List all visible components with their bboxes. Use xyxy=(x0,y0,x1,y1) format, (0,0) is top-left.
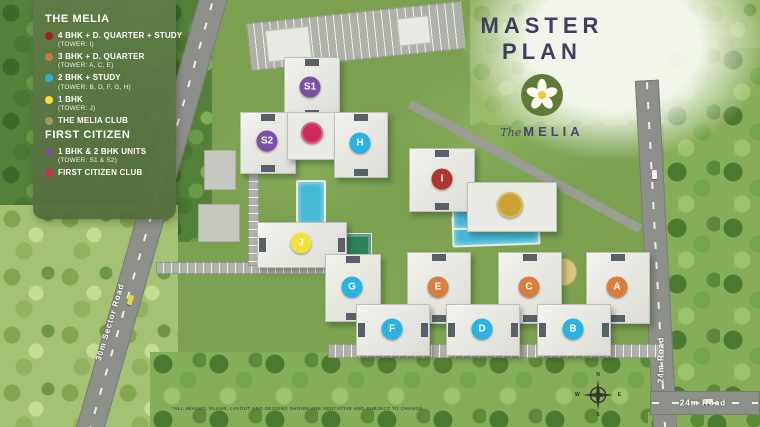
tower-marker-c: C xyxy=(519,277,540,298)
first-citizen-club-marker xyxy=(301,122,323,144)
legend-item-sub: (TOWER: B, D, F, G, H) xyxy=(58,84,131,91)
compass-w-label: W xyxy=(575,392,580,398)
disclaimer-text: *ALL IMAGES, PLANS, LAYOUT AND DESIGNS S… xyxy=(172,407,423,412)
tower-marker-f: F xyxy=(382,319,403,340)
legend-item: 4 BHK + D. QUARTER + STUDY(TOWER: I) xyxy=(45,31,170,48)
brand-wordmark: TheMELIA xyxy=(438,123,646,141)
legend-item-text: 1 BHK(TOWER: J) xyxy=(58,95,95,112)
building-utility-2 xyxy=(396,15,431,46)
legend-item-label: 3 BHK + D. QUARTER xyxy=(58,52,145,61)
road-label: 24m Road xyxy=(657,337,666,383)
legend-item-label: THE MELIA CLUB xyxy=(58,116,128,125)
tower-marker-a: A xyxy=(607,277,628,298)
compass-n-label: N xyxy=(596,372,600,378)
legend-item-sub: (TOWER: A, C, E) xyxy=(58,62,145,69)
compass-e-label: E xyxy=(618,392,621,398)
legend-item-sub: (TOWER: I) xyxy=(58,41,182,48)
legend-item-label: 1 BHK & 2 BHK UNITS xyxy=(58,147,146,156)
legend-color-dot xyxy=(45,74,53,82)
brand-name: MELIA xyxy=(523,124,583,139)
tower-marker-s1: S1 xyxy=(300,77,321,98)
amenity-pad-1 xyxy=(204,150,236,190)
legend-color-dot xyxy=(45,32,53,40)
legend-item-label: 1 BHK xyxy=(58,95,95,104)
legend-item-text: 3 BHK + D. QUARTER(TOWER: A, C, E) xyxy=(58,52,145,69)
legend-color-dot xyxy=(45,148,53,156)
tower-marker-j: J xyxy=(291,233,312,254)
legend-color-dot xyxy=(45,117,53,125)
legend-item-label: 4 BHK + D. QUARTER + STUDY xyxy=(58,31,182,40)
brand-script: The xyxy=(500,126,521,139)
compass-icon: N E S W xyxy=(576,373,620,417)
legend-item-text: 2 BHK + STUDY(TOWER: B, D, F, G, H) xyxy=(58,73,131,90)
legend-color-dot xyxy=(45,53,53,61)
legend-section-title: FIRST CITIZEN xyxy=(45,129,170,141)
legend-color-dot xyxy=(45,169,53,177)
legend-item: 3 BHK + D. QUARTER(TOWER: A, C, E) xyxy=(45,52,170,69)
tower-marker-h: H xyxy=(350,133,371,154)
legend-item-sub: (TOWER: S1 & S2) xyxy=(58,157,146,164)
car xyxy=(652,170,657,179)
legend-item: 1 BHK(TOWER: J) xyxy=(45,95,170,112)
master-plan: THE MELIA4 BHK + D. QUARTER + STUDY(TOWE… xyxy=(0,0,760,427)
tower-marker-i: I xyxy=(432,169,453,190)
tower-marker-e: E xyxy=(428,277,449,298)
legend-item: FIRST CITIZEN CLUB xyxy=(45,168,170,177)
title-block: MASTER PLAN TheMELIA xyxy=(438,13,646,141)
compass-s-label: S xyxy=(596,412,599,418)
first-citizen-pool xyxy=(296,180,326,226)
legend-section-title: THE MELIA xyxy=(45,13,170,25)
legend-item-text: FIRST CITIZEN CLUB xyxy=(58,168,142,177)
legend-item-label: FIRST CITIZEN CLUB xyxy=(58,168,142,177)
tower-marker-b: B xyxy=(563,319,584,340)
legend-item-sub: (TOWER: J) xyxy=(58,105,95,112)
legend-item-text: 4 BHK + D. QUARTER + STUDY(TOWER: I) xyxy=(58,31,182,48)
amenity-pad-2 xyxy=(198,204,240,242)
legend-item-text: THE MELIA CLUB xyxy=(58,116,128,125)
legend-color-dot xyxy=(45,96,53,104)
legend-item: 1 BHK & 2 BHK UNITS(TOWER: S1 & S2) xyxy=(45,147,170,164)
legend-panel: THE MELIA4 BHK + D. QUARTER + STUDY(TOWE… xyxy=(33,0,176,219)
tower-marker-d: D xyxy=(472,319,493,340)
page-title: MASTER PLAN xyxy=(438,13,646,65)
tower-marker-s2: S2 xyxy=(257,131,278,152)
legend-item-text: 1 BHK & 2 BHK UNITS(TOWER: S1 & S2) xyxy=(58,147,146,164)
road-label: 24m Road xyxy=(680,399,726,408)
flower-logo-icon xyxy=(521,74,563,116)
legend-item-label: 2 BHK + STUDY xyxy=(58,73,131,82)
melia-club-marker xyxy=(497,192,523,218)
tower-marker-g: G xyxy=(342,277,363,298)
legend-item: 2 BHK + STUDY(TOWER: B, D, F, G, H) xyxy=(45,73,170,90)
legend-item: THE MELIA CLUB xyxy=(45,116,170,125)
